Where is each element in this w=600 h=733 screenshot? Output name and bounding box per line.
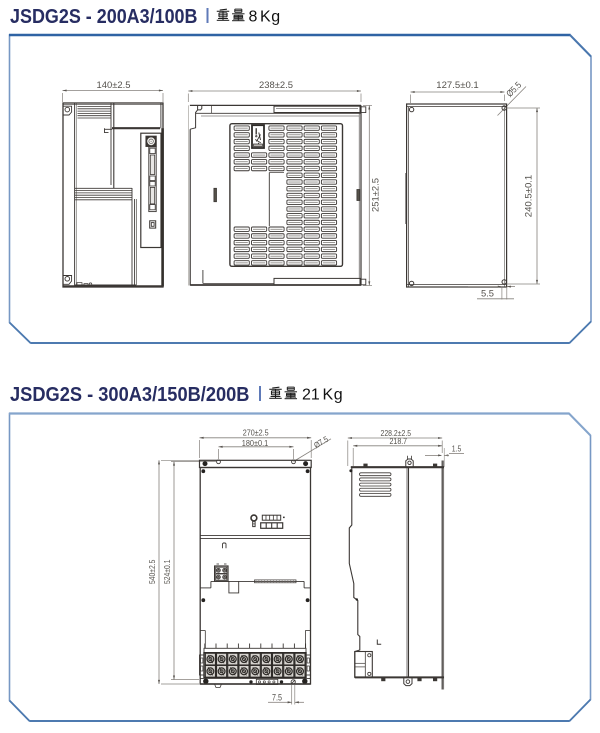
svg-text:140±2.5: 140±2.5 [97,79,131,90]
svg-text:Ø7.5: Ø7.5 [312,434,330,450]
svg-text:Kg: Kg [260,9,281,26]
svg-text:218.7: 218.7 [390,436,408,446]
svg-text:JSDG2S - 300A3/150B/200B: JSDG2S - 300A3/150B/200B [10,383,250,406]
svg-text:251±2.5: 251±2.5 [370,178,381,212]
svg-text:540±2.5: 540±2.5 [147,559,157,584]
svg-text:127.5±0.1: 127.5±0.1 [436,79,479,90]
svg-text:240.5±0.1: 240.5±0.1 [523,175,534,218]
svg-text:JSDG2S - 200A3/100B: JSDG2S - 200A3/100B [10,5,198,28]
svg-text:238±2.5: 238±2.5 [259,79,293,90]
svg-text:8: 8 [249,9,258,26]
svg-text:Ø5.5: Ø5.5 [504,80,523,99]
svg-text:180±0.1: 180±0.1 [242,438,269,448]
svg-text:5.5: 5.5 [481,288,494,299]
svg-text:270±2.5: 270±2.5 [243,427,269,437]
svg-text:1.5: 1.5 [452,444,462,454]
svg-text:7.5: 7.5 [272,693,282,703]
svg-text:Kg: Kg [323,387,344,404]
svg-text:524±0.1: 524±0.1 [162,559,172,584]
svg-text:21: 21 [302,387,320,404]
